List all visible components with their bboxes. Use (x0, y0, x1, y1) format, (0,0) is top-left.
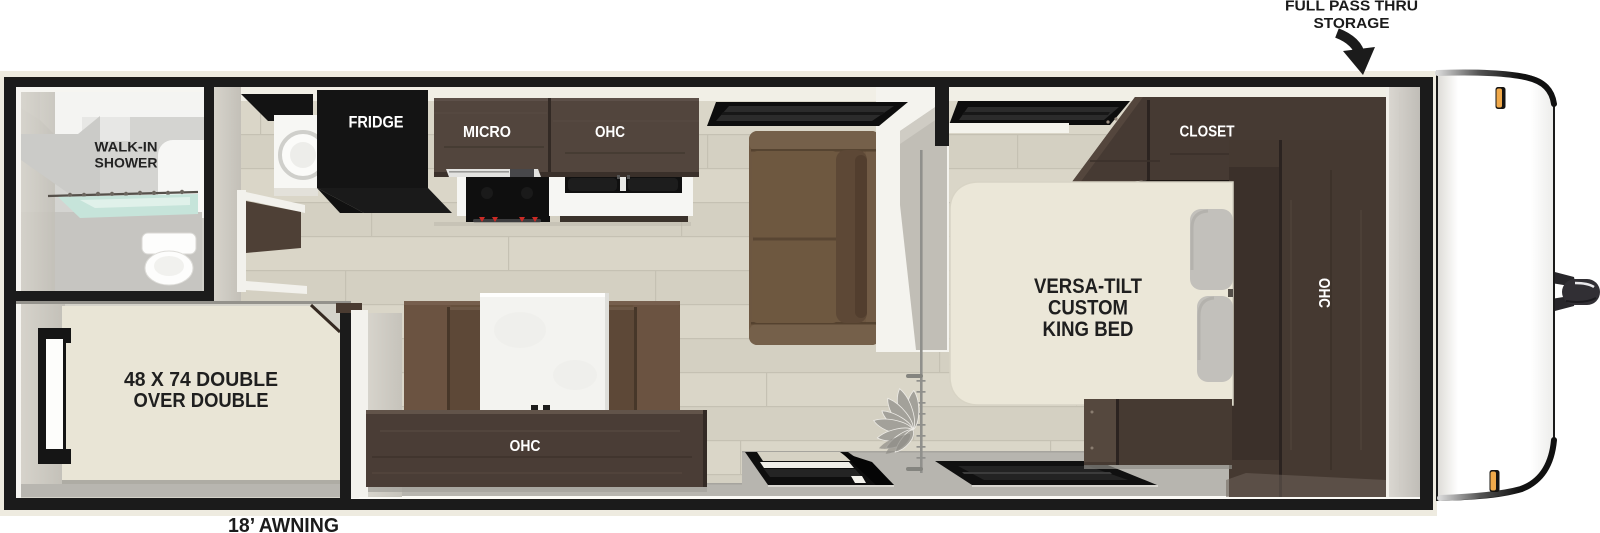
svg-text:48 X 74 DOUBLE: 48 X 74 DOUBLE (124, 368, 278, 391)
svg-text:FRIDGE: FRIDGE (349, 113, 404, 132)
svg-text:MICRO: MICRO (463, 124, 511, 141)
svg-text:OHC: OHC (1315, 278, 1332, 308)
svg-text:18’ AWNING: 18’ AWNING (228, 515, 339, 533)
svg-text:OHC: OHC (510, 438, 541, 455)
svg-text:CUSTOM: CUSTOM (1048, 296, 1128, 320)
svg-text:KING BED: KING BED (1043, 317, 1134, 341)
svg-text:VERSA-TILT: VERSA-TILT (1034, 274, 1142, 298)
svg-text:FULL PASS THRU: FULL PASS THRU (1285, 0, 1418, 15)
svg-text:OHC: OHC (595, 124, 625, 141)
svg-text:OVER DOUBLE: OVER DOUBLE (134, 389, 269, 412)
svg-text:STORAGE: STORAGE (1314, 16, 1390, 32)
svg-text:WALK-IN: WALK-IN (95, 139, 158, 155)
svg-text:CLOSET: CLOSET (1180, 124, 1235, 141)
svg-text:SHOWER: SHOWER (95, 155, 158, 171)
